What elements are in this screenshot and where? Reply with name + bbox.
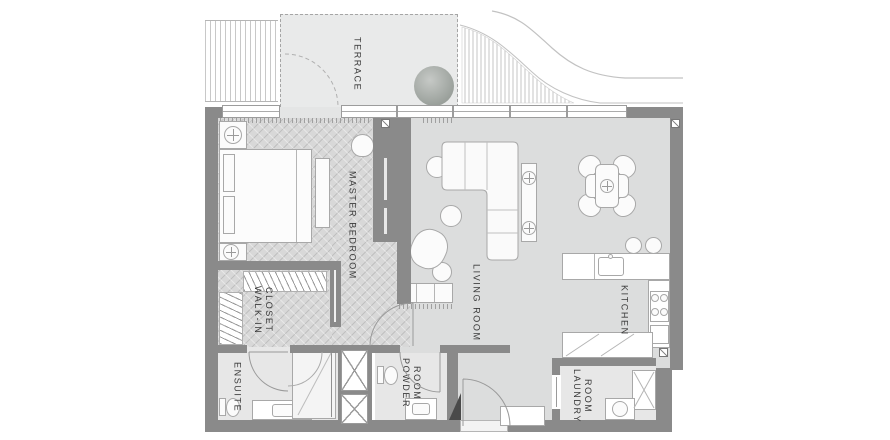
nightstand-lamp-icon: [223, 244, 239, 260]
wall-bedroom-closet: [205, 261, 332, 270]
stove-burner-icon: [651, 294, 659, 302]
toilet-icon: [219, 398, 226, 416]
room-label-powder-room: POWDER ROOM: [397, 352, 425, 414]
column-marker-icon: [659, 348, 668, 357]
side-table: [426, 156, 448, 178]
floor-plan: TERRACE MASTER BEDROOM WALK-IN CLOSET EN…: [0, 0, 890, 440]
kitchen-sink: [598, 257, 624, 276]
wall-powder-right: [447, 353, 458, 428]
media-console-hatch: [399, 304, 452, 309]
wall-right-step: [656, 368, 672, 432]
terrace-tree-icon: [414, 66, 454, 106]
kitchen-counter-divider: [594, 254, 595, 279]
bed-blanket-line: [296, 150, 297, 242]
wall-laundry-top: [552, 358, 656, 366]
stove-burner-icon: [660, 294, 668, 302]
media-console-divider: [434, 284, 435, 302]
pocket-door-track: [334, 270, 336, 322]
tv-wall: [397, 118, 411, 304]
toilet-icon: [384, 366, 398, 385]
bar-stool: [625, 237, 642, 254]
laundry-counter: [632, 370, 656, 410]
wall-right: [670, 112, 683, 370]
stove-burner-icon: [651, 308, 659, 316]
entry-cabinet: [500, 406, 545, 426]
room-label-kitchen: KITCHEN: [614, 282, 634, 338]
nightstand-lamp-icon: [224, 126, 242, 144]
washer-door-icon: [612, 401, 628, 417]
toilet-icon: [377, 366, 384, 384]
kitchen-faucet-icon: [608, 254, 613, 259]
vanity-sink-icon: [272, 404, 294, 417]
balcony-curve: [492, 11, 683, 78]
window: [567, 105, 627, 118]
bed-bench: [315, 158, 330, 228]
room-label-terrace: TERRACE: [346, 20, 368, 108]
stove-burner-icon: [660, 308, 668, 316]
wall-bath-top: [440, 345, 510, 353]
wall-bottom: [205, 420, 462, 432]
duct-shaft: [341, 350, 368, 391]
balcony-curve: [460, 25, 683, 103]
bed-pillow: [223, 154, 235, 192]
column-marker-icon: [381, 119, 390, 128]
column-marker-icon: [671, 119, 680, 128]
room-label-master-bedroom: MASTER BEDROOM: [342, 158, 362, 293]
window: [397, 105, 453, 118]
tv-wall-niche: [384, 208, 387, 234]
bed-pillow: [223, 196, 235, 234]
tv-wall-niche: [384, 158, 387, 200]
window: [453, 105, 510, 118]
media-console-divider: [416, 284, 417, 302]
wardrobe-rail: [219, 292, 243, 345]
shower: [292, 349, 336, 419]
bedroom-chair: [351, 134, 374, 157]
balcony-hatch-area: [462, 27, 574, 103]
wall-bath-top: [205, 345, 247, 353]
console-lamp-icon: [522, 171, 536, 185]
room-label-living-room: LIVING ROOM: [466, 262, 486, 344]
coffee-table: [440, 205, 462, 227]
window: [510, 105, 567, 118]
duct-shaft: [341, 394, 368, 424]
window: [222, 105, 280, 118]
louver-strip: [205, 20, 278, 102]
console-lamp-icon: [522, 221, 536, 235]
room-label-ensuite: ENSUITE: [228, 355, 246, 419]
dining-table-center: [600, 179, 614, 193]
room-label-walk-in-closet: WALK-IN CLOSET: [248, 272, 278, 348]
laundry-door-panel: [556, 377, 557, 407]
wall-hatch: [423, 118, 455, 123]
terrace-door-opening: [280, 107, 341, 118]
bar-stool: [645, 237, 662, 254]
room-label-laundry-room: LAUNDRY ROOM: [568, 368, 596, 424]
shower-glass: [331, 351, 332, 417]
kitchen-counter: [562, 332, 653, 358]
